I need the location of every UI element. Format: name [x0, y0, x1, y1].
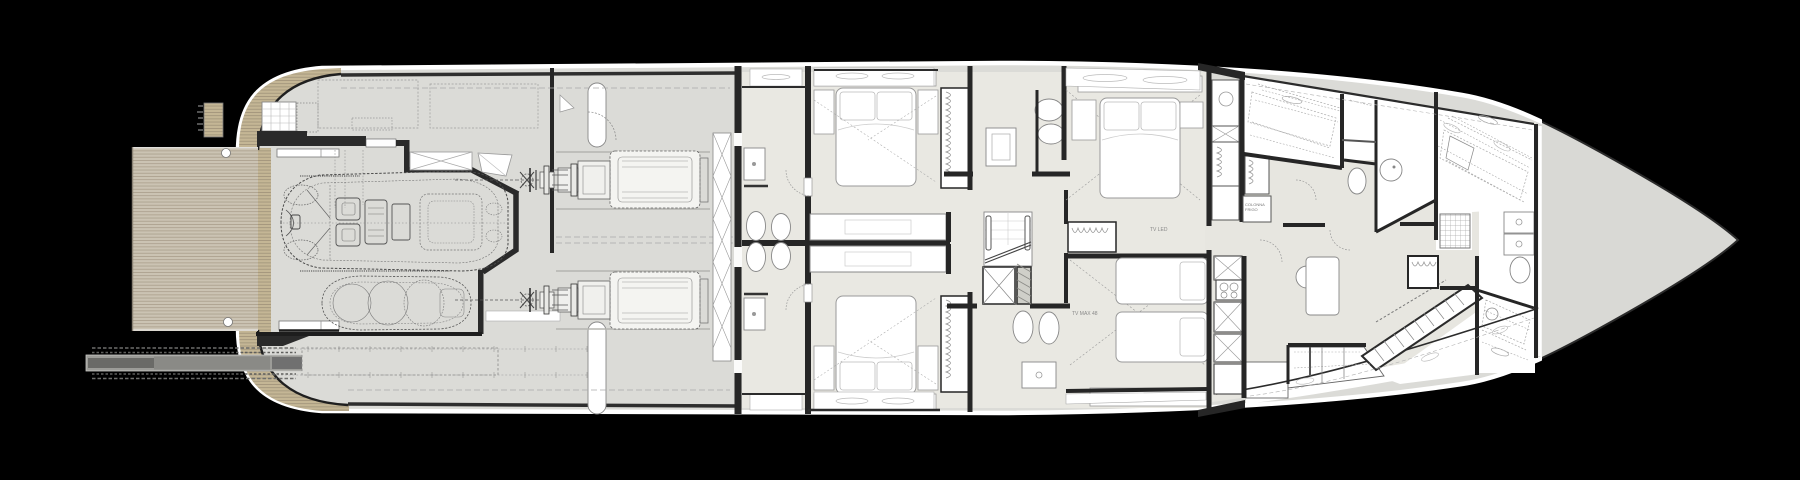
svg-text:FRIGO: FRIGO	[1245, 207, 1258, 212]
svg-text:TV MAX 48: TV MAX 48	[1072, 311, 1098, 317]
svg-text:TV LED: TV LED	[1150, 227, 1168, 233]
